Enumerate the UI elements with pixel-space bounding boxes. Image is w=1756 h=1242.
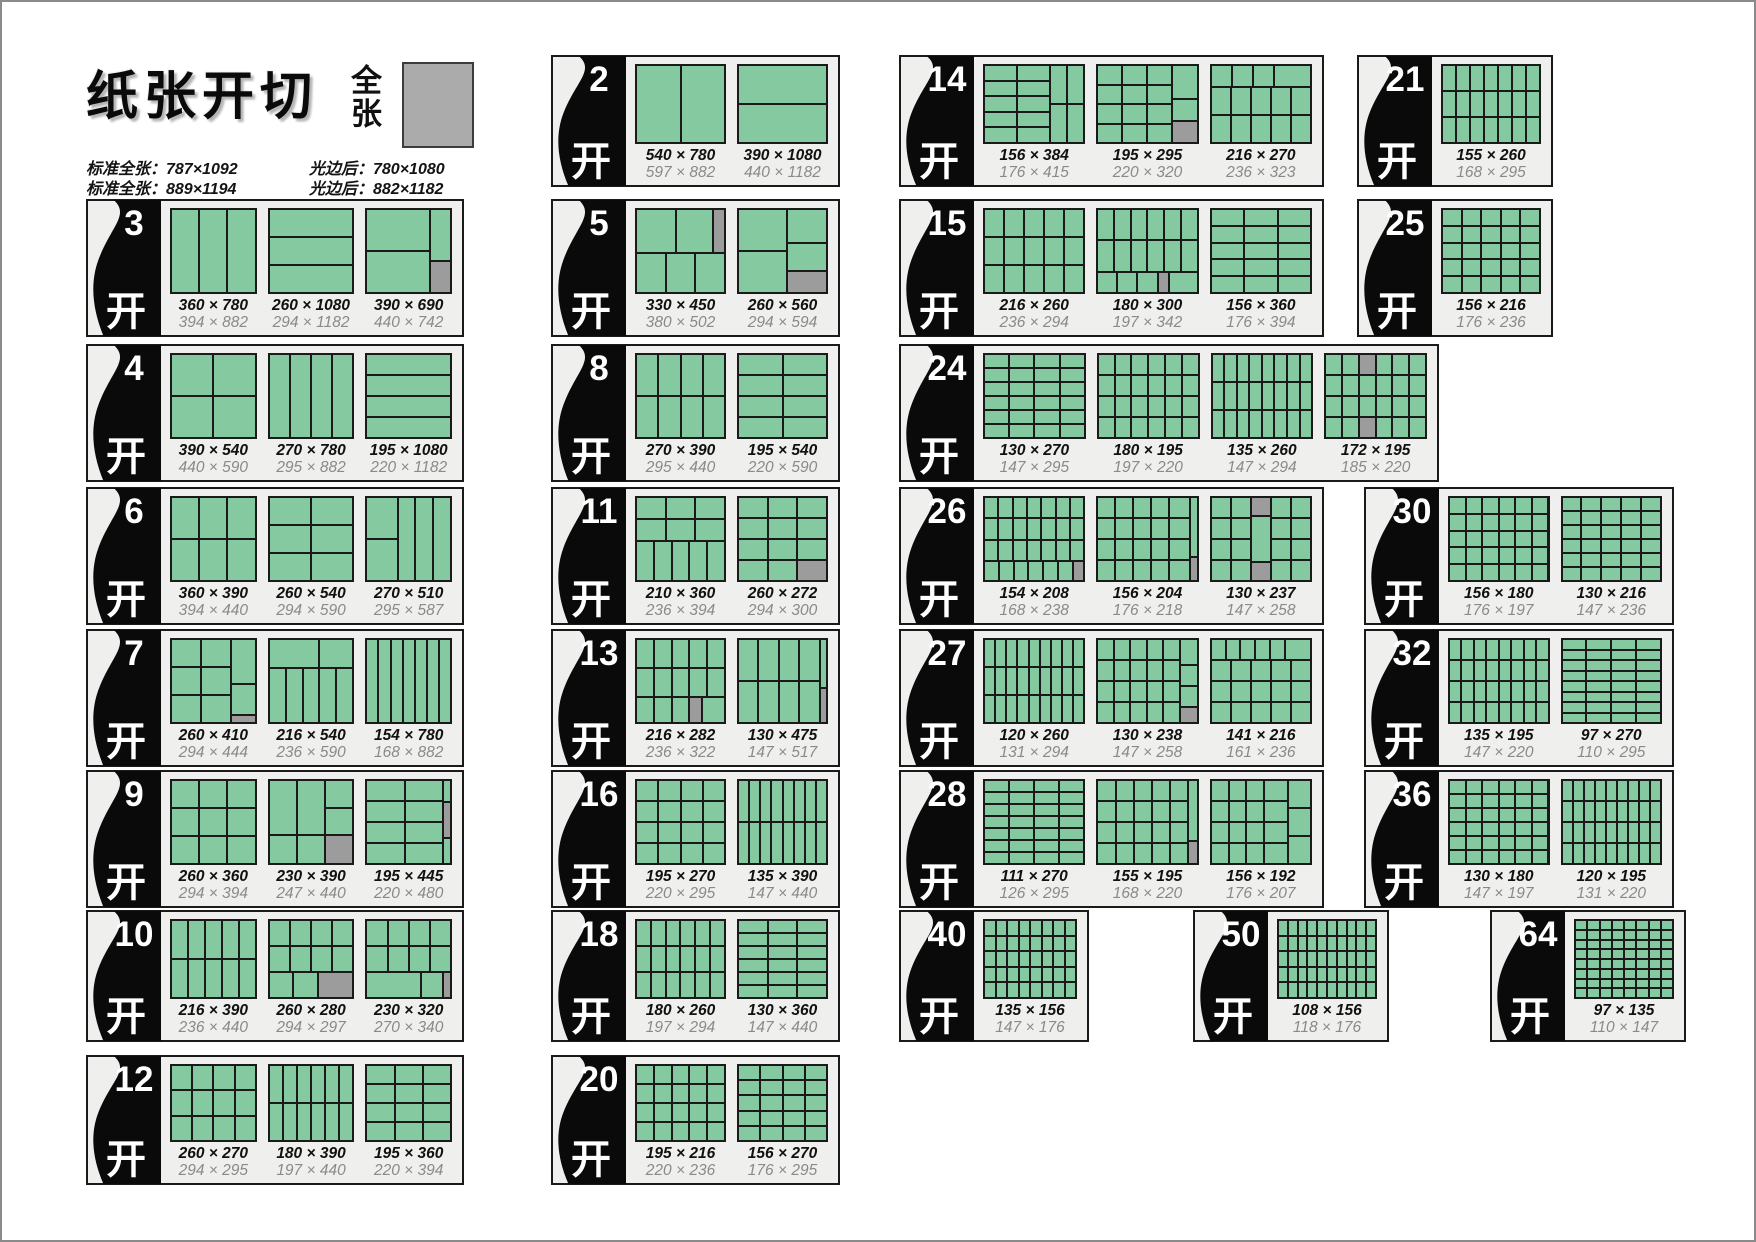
cut-piece bbox=[999, 519, 1011, 538]
cut-piece bbox=[1585, 781, 1594, 800]
cut-piece bbox=[1015, 562, 1028, 580]
cut-piece bbox=[997, 968, 1007, 982]
cut-option: 130 × 360147 × 440 bbox=[737, 919, 828, 1036]
cut-piece bbox=[444, 839, 450, 863]
cut-piece bbox=[1467, 851, 1482, 863]
cut-piece bbox=[312, 921, 331, 945]
cut-piece bbox=[696, 498, 724, 518]
cut-piece bbox=[1272, 540, 1290, 559]
trimmed-piece-size: 147 × 295 bbox=[983, 459, 1086, 476]
cut-piece bbox=[291, 921, 310, 945]
kai-label: 开 bbox=[96, 1127, 156, 1185]
cut-piece bbox=[1642, 526, 1660, 538]
cut-piece bbox=[1625, 980, 1635, 988]
cut-piece bbox=[1516, 851, 1531, 863]
card-10-kai: 10开216 × 390236 × 440260 × 280294 × 2972… bbox=[86, 910, 464, 1042]
cut-diagram bbox=[1441, 208, 1541, 294]
cut-piece bbox=[1116, 498, 1132, 517]
cut-piece bbox=[1299, 983, 1307, 997]
diagram-row: 130 × 270147 × 295180 × 195197 × 220135 … bbox=[975, 346, 1437, 480]
piece-size: 156 × 216 bbox=[1441, 297, 1541, 314]
cut-piece bbox=[1450, 703, 1460, 722]
card-24-kai: 24开130 × 270147 × 295180 × 195197 × 2201… bbox=[899, 344, 1439, 482]
cut-piece bbox=[1629, 781, 1638, 800]
cut-option: 270 × 780295 × 882 bbox=[268, 353, 355, 476]
cut-piece bbox=[1576, 921, 1586, 929]
cut-piece bbox=[788, 244, 826, 270]
cut-piece bbox=[1662, 970, 1672, 978]
cut-piece bbox=[1183, 376, 1198, 395]
cut-piece bbox=[985, 266, 1003, 292]
cut-piece bbox=[1018, 97, 1049, 111]
cut-piece bbox=[637, 640, 653, 667]
cut-piece bbox=[1576, 989, 1586, 997]
cut-piece bbox=[1041, 696, 1050, 722]
cut-piece bbox=[1289, 837, 1310, 863]
cut-piece bbox=[389, 947, 408, 971]
cut-piece bbox=[1181, 640, 1197, 664]
cut-piece bbox=[682, 802, 702, 821]
kai-label: 开 bbox=[561, 279, 621, 337]
cut-piece bbox=[1475, 682, 1485, 701]
cut-piece bbox=[1463, 227, 1481, 242]
cut-piece bbox=[1250, 355, 1261, 381]
cut-piece bbox=[1279, 227, 1310, 242]
piece-size: 156 × 384 bbox=[983, 147, 1085, 164]
cut-piece bbox=[739, 921, 767, 932]
cut-piece bbox=[1045, 266, 1063, 292]
cut-piece bbox=[800, 682, 818, 722]
trimmed-piece-size: 147 × 440 bbox=[737, 1019, 828, 1036]
cut-piece bbox=[761, 781, 770, 821]
cut-piece bbox=[367, 781, 403, 800]
cut-piece bbox=[404, 640, 414, 722]
cut-piece bbox=[232, 685, 254, 714]
cut-piece bbox=[1622, 554, 1640, 566]
cut-piece bbox=[1232, 561, 1250, 580]
cut-piece bbox=[1625, 941, 1635, 949]
cut-piece bbox=[270, 355, 289, 437]
cut-piece bbox=[1612, 714, 1635, 723]
card-64-kai: 64开97 × 135110 × 147 bbox=[1490, 910, 1686, 1042]
waste-piece bbox=[1181, 708, 1197, 722]
cut-piece bbox=[1500, 498, 1515, 513]
cut-option: 260 × 280294 × 297 bbox=[268, 919, 355, 1036]
cut-diagram bbox=[268, 208, 355, 294]
cut-piece bbox=[1098, 273, 1116, 292]
cut-piece bbox=[1245, 210, 1276, 225]
cut-piece bbox=[637, 498, 665, 518]
cut-piece bbox=[1010, 397, 1033, 409]
cut-piece bbox=[985, 793, 1008, 803]
cut-piece bbox=[1328, 983, 1336, 997]
cut-option: 155 × 195168 × 220 bbox=[1096, 779, 1198, 902]
cut-piece bbox=[1165, 241, 1180, 270]
cut-piece bbox=[1450, 515, 1465, 530]
cut-option: 156 × 192176 × 207 bbox=[1210, 779, 1312, 902]
cut-piece bbox=[1275, 383, 1286, 409]
card-number: 64 bbox=[1512, 915, 1564, 955]
cut-piece bbox=[270, 526, 310, 552]
cut-piece bbox=[1057, 541, 1069, 560]
cut-piece bbox=[1018, 128, 1049, 142]
cut-piece bbox=[1625, 950, 1635, 958]
cut-piece bbox=[769, 986, 797, 997]
cut-piece bbox=[236, 1117, 255, 1140]
cut-piece bbox=[223, 921, 238, 958]
card-number: 11 bbox=[573, 492, 625, 532]
cut-option: 154 × 780168 × 882 bbox=[365, 638, 452, 761]
cut-piece bbox=[172, 210, 198, 292]
cut-piece bbox=[431, 947, 450, 971]
cut-option: 210 × 360236 × 394 bbox=[635, 496, 726, 619]
waste-piece bbox=[444, 973, 450, 997]
cut-piece bbox=[1612, 693, 1635, 702]
cut-piece bbox=[1650, 960, 1660, 968]
card-number: 9 bbox=[108, 775, 160, 815]
cut-piece bbox=[1232, 703, 1250, 722]
cut-piece bbox=[985, 238, 1003, 264]
cut-piece bbox=[228, 210, 254, 292]
cut-piece bbox=[1357, 937, 1365, 951]
cut-piece bbox=[1582, 498, 1600, 510]
cut-piece bbox=[1018, 696, 1027, 722]
trimmed-piece-size: 220 × 1182 bbox=[365, 459, 452, 476]
piece-size: 195 × 540 bbox=[737, 442, 828, 459]
cut-piece bbox=[1149, 355, 1164, 374]
card-26-kai: 26开154 × 208168 × 238156 × 204176 × 2181… bbox=[899, 487, 1324, 625]
cut-piece bbox=[1450, 640, 1460, 659]
cut-piece bbox=[431, 210, 450, 260]
cut-piece bbox=[1502, 260, 1520, 275]
cut-piece bbox=[1533, 823, 1548, 835]
card-number: 10 bbox=[108, 915, 160, 955]
cut-piece bbox=[1117, 823, 1133, 842]
cut-piece bbox=[1212, 66, 1231, 86]
cut-piece bbox=[1348, 921, 1356, 935]
cut-option: 135 × 390147 × 440 bbox=[737, 779, 828, 902]
cut-piece bbox=[659, 397, 679, 437]
cut-piece bbox=[1035, 841, 1058, 851]
cut-piece bbox=[1576, 931, 1586, 939]
cut-piece bbox=[1292, 498, 1310, 517]
cut-piece bbox=[312, 1104, 324, 1140]
cut-piece bbox=[761, 1112, 781, 1125]
trimmed-piece-size: 176 × 207 bbox=[1210, 885, 1312, 902]
cut-diagram bbox=[1561, 779, 1663, 865]
cut-piece bbox=[1482, 260, 1500, 275]
cut-piece bbox=[1132, 418, 1147, 437]
cut-piece bbox=[1098, 640, 1112, 659]
cut-piece bbox=[1500, 640, 1510, 659]
cut-piece bbox=[1393, 418, 1408, 437]
cut-piece bbox=[1018, 640, 1027, 666]
cut-piece bbox=[1588, 950, 1598, 958]
cut-piece bbox=[1212, 277, 1243, 292]
cut-piece bbox=[1031, 921, 1041, 935]
cut-piece bbox=[655, 698, 671, 722]
cut-piece bbox=[172, 1066, 191, 1089]
cut-piece bbox=[1279, 937, 1287, 951]
cut-piece bbox=[1537, 703, 1547, 722]
cut-option: 154 × 208168 × 238 bbox=[983, 496, 1085, 619]
cut-piece bbox=[240, 960, 255, 997]
trimmed-piece-size: 220 × 236 bbox=[635, 1162, 726, 1179]
cut-piece bbox=[1071, 498, 1083, 517]
cut-piece bbox=[1662, 941, 1672, 949]
cut-option: 216 × 390236 × 440 bbox=[170, 919, 257, 1036]
cut-piece bbox=[1045, 238, 1063, 264]
cut-piece bbox=[270, 836, 296, 863]
kai-label: 开 bbox=[561, 567, 621, 625]
cut-piece bbox=[1607, 823, 1616, 842]
cut-piece bbox=[673, 640, 689, 667]
cut-piece bbox=[228, 498, 254, 538]
cut-piece bbox=[1516, 565, 1531, 580]
cut-piece bbox=[1500, 837, 1515, 849]
cut-piece bbox=[667, 947, 680, 971]
waste-piece bbox=[1252, 498, 1270, 515]
cut-piece bbox=[1650, 980, 1660, 988]
cut-piece bbox=[1252, 682, 1270, 701]
cut-piece bbox=[1132, 397, 1147, 416]
cut-piece bbox=[1500, 795, 1515, 807]
card-40-kai: 40开135 × 156147 × 176 bbox=[899, 910, 1089, 1042]
cut-piece bbox=[1521, 277, 1539, 292]
cut-piece bbox=[1005, 266, 1023, 292]
cut-diagram bbox=[737, 919, 828, 999]
cut-piece bbox=[1272, 498, 1290, 517]
trimmed-piece-size: 220 × 480 bbox=[365, 885, 452, 902]
cut-piece bbox=[1065, 266, 1083, 292]
cut-piece bbox=[1247, 802, 1263, 821]
cut-piece bbox=[1367, 952, 1375, 966]
cut-piece bbox=[1483, 809, 1498, 821]
piece-size: 180 × 195 bbox=[1097, 442, 1200, 459]
trimmed-piece-size: 294 × 594 bbox=[737, 314, 828, 331]
cut-piece bbox=[1602, 554, 1620, 566]
cut-piece bbox=[1637, 714, 1660, 723]
piece-size: 210 × 360 bbox=[635, 585, 726, 602]
cut-piece bbox=[1637, 640, 1660, 649]
piece-size: 216 × 282 bbox=[635, 727, 726, 744]
card-number: 3 bbox=[108, 204, 160, 244]
card-27-kai: 27开120 × 260131 × 294130 × 238147 × 2581… bbox=[899, 629, 1324, 767]
cut-piece bbox=[1601, 970, 1611, 978]
cut-piece bbox=[1650, 970, 1660, 978]
kai-label: 开 bbox=[909, 709, 969, 767]
cut-piece bbox=[1574, 781, 1583, 800]
cut-piece bbox=[659, 823, 679, 842]
kai-label: 开 bbox=[1367, 279, 1427, 337]
cut-piece bbox=[1328, 921, 1336, 935]
card-8-kai: 8开270 × 390295 × 440195 × 540220 × 590 bbox=[551, 344, 840, 482]
cut-piece bbox=[1213, 355, 1224, 381]
card-number: 15 bbox=[921, 204, 973, 244]
cut-piece bbox=[172, 397, 212, 437]
cut-piece bbox=[1025, 238, 1043, 264]
cut-piece bbox=[1288, 383, 1299, 409]
cut-piece bbox=[1265, 844, 1286, 863]
spec-line: 光边后：780×1080 bbox=[309, 160, 445, 180]
cut-piece bbox=[1467, 795, 1482, 807]
cut-piece bbox=[690, 1085, 706, 1102]
card-32-kai: 32开135 × 195147 × 22097 × 270110 × 295 bbox=[1364, 629, 1674, 767]
cut-piece bbox=[1135, 802, 1151, 821]
cut-piece bbox=[667, 520, 695, 540]
waste-piece bbox=[431, 262, 450, 292]
cut-piece bbox=[1485, 92, 1497, 116]
piece-size: 390 × 540 bbox=[170, 442, 257, 459]
cut-piece bbox=[1377, 397, 1392, 416]
cut-piece bbox=[367, 823, 403, 842]
cut-piece bbox=[1148, 241, 1163, 270]
cut-piece bbox=[1563, 714, 1586, 723]
cut-piece bbox=[985, 921, 995, 935]
cut-piece bbox=[1007, 696, 1016, 722]
cut-piece bbox=[821, 640, 826, 687]
cut-piece bbox=[667, 498, 695, 518]
cut-piece bbox=[1166, 355, 1181, 374]
cut-piece bbox=[1014, 519, 1026, 538]
cut-piece bbox=[659, 844, 679, 863]
cut-piece bbox=[223, 960, 238, 997]
cut-piece bbox=[1582, 512, 1600, 524]
cut-piece bbox=[1622, 540, 1640, 552]
card-6-kai: 6开360 × 390394 × 440260 × 540294 × 59027… bbox=[86, 487, 464, 625]
cut-piece bbox=[1245, 244, 1276, 259]
cut-piece bbox=[206, 960, 221, 997]
cut-piece bbox=[1533, 795, 1548, 807]
kai-label: 开 bbox=[909, 984, 969, 1042]
cut-piece bbox=[1289, 952, 1297, 966]
cut-piece bbox=[172, 540, 198, 580]
cut-piece bbox=[214, 1091, 233, 1114]
cut-piece bbox=[655, 1104, 671, 1121]
cut-piece bbox=[1132, 241, 1147, 270]
cut-piece bbox=[739, 973, 767, 984]
cut-option: 156 × 384176 × 415 bbox=[983, 64, 1085, 181]
cut-piece bbox=[1071, 519, 1083, 538]
cut-piece bbox=[1601, 921, 1611, 929]
cut-piece bbox=[1482, 227, 1500, 242]
cut-piece bbox=[769, 519, 797, 538]
card-number: 28 bbox=[921, 775, 973, 815]
cut-piece bbox=[1563, 640, 1586, 649]
cut-piece bbox=[985, 817, 1008, 827]
cut-piece bbox=[1500, 661, 1510, 680]
cut-piece bbox=[1576, 970, 1586, 978]
card-number: 40 bbox=[921, 915, 973, 955]
cut-piece bbox=[298, 1104, 310, 1140]
cut-piece bbox=[1170, 519, 1189, 538]
cut-piece bbox=[172, 921, 187, 958]
cut-piece bbox=[1533, 837, 1548, 849]
cut-piece bbox=[1245, 260, 1276, 275]
card-number: 6 bbox=[108, 492, 160, 532]
kai-label: 开 bbox=[1367, 129, 1427, 187]
cut-piece bbox=[1148, 640, 1162, 659]
cut-piece bbox=[1443, 244, 1461, 259]
diagram-row: 97 × 135110 × 147 bbox=[1566, 912, 1684, 1040]
piece-size: 260 × 360 bbox=[170, 868, 257, 885]
trimmed-piece-size: 236 × 394 bbox=[635, 602, 726, 619]
cut-diagram bbox=[1324, 353, 1427, 439]
cut-piece bbox=[806, 1112, 826, 1125]
cut-diagram bbox=[1448, 638, 1550, 724]
cut-diagram bbox=[365, 1064, 452, 1142]
cut-piece bbox=[769, 960, 797, 971]
cut-piece bbox=[1010, 841, 1033, 851]
cut-piece bbox=[1098, 125, 1121, 143]
cut-piece bbox=[985, 841, 1008, 851]
cut-piece bbox=[1134, 519, 1150, 538]
cut-piece bbox=[333, 355, 352, 437]
trimmed-piece-size: 294 × 295 bbox=[170, 1162, 257, 1179]
cut-diagram bbox=[1211, 353, 1314, 439]
piece-size: 216 × 260 bbox=[983, 297, 1085, 314]
cut-piece bbox=[1212, 88, 1230, 114]
cut-piece bbox=[1238, 355, 1249, 381]
cut-piece bbox=[172, 1117, 191, 1140]
cut-diagram bbox=[365, 779, 452, 865]
cut-piece bbox=[1328, 968, 1336, 982]
cut-piece bbox=[200, 809, 226, 835]
cut-piece bbox=[704, 781, 724, 800]
piece-size: 135 × 156 bbox=[983, 1002, 1077, 1019]
cut-piece bbox=[337, 669, 352, 722]
cut-piece bbox=[1637, 661, 1660, 670]
cut-piece bbox=[1602, 526, 1620, 538]
cut-diagram bbox=[1448, 779, 1550, 865]
cut-piece bbox=[172, 809, 198, 835]
diagram-row: 195 × 270220 × 295135 × 390147 × 440 bbox=[627, 772, 838, 906]
cut-piece bbox=[1183, 418, 1198, 437]
cut-piece bbox=[780, 682, 798, 722]
cut-piece bbox=[202, 640, 230, 666]
cut-piece bbox=[1651, 823, 1660, 842]
cut-piece bbox=[1213, 411, 1224, 437]
cut-piece bbox=[1563, 568, 1581, 580]
cut-piece bbox=[1516, 837, 1531, 849]
cut-piece bbox=[1642, 498, 1660, 510]
trimmed-piece-size: 168 × 238 bbox=[983, 602, 1085, 619]
cut-piece bbox=[1170, 498, 1189, 517]
cut-piece bbox=[1601, 989, 1611, 997]
cut-piece bbox=[1028, 498, 1040, 517]
cut-piece bbox=[1115, 661, 1129, 680]
cut-piece bbox=[1587, 640, 1610, 649]
cut-piece bbox=[1482, 277, 1500, 292]
cut-piece bbox=[1467, 781, 1482, 793]
piece-size: 130 × 180 bbox=[1448, 868, 1550, 885]
cut-piece bbox=[761, 1096, 781, 1109]
trimmed-piece-size: 185 × 220 bbox=[1324, 459, 1427, 476]
cut-piece bbox=[739, 418, 782, 437]
trimmed-piece-size: 295 × 882 bbox=[268, 459, 355, 476]
cut-piece bbox=[696, 921, 709, 945]
cut-piece bbox=[1008, 952, 1018, 966]
cut-piece bbox=[1098, 823, 1114, 842]
cut-piece bbox=[1230, 781, 1246, 800]
cut-option: 260 × 272294 × 300 bbox=[737, 496, 828, 619]
cut-piece bbox=[236, 1091, 255, 1114]
cut-piece bbox=[1338, 937, 1346, 951]
piece-size: 156 × 192 bbox=[1210, 868, 1312, 885]
cut-piece bbox=[1212, 682, 1230, 701]
trimmed-piece-size: 440 × 590 bbox=[170, 459, 257, 476]
cut-piece bbox=[1292, 682, 1310, 701]
